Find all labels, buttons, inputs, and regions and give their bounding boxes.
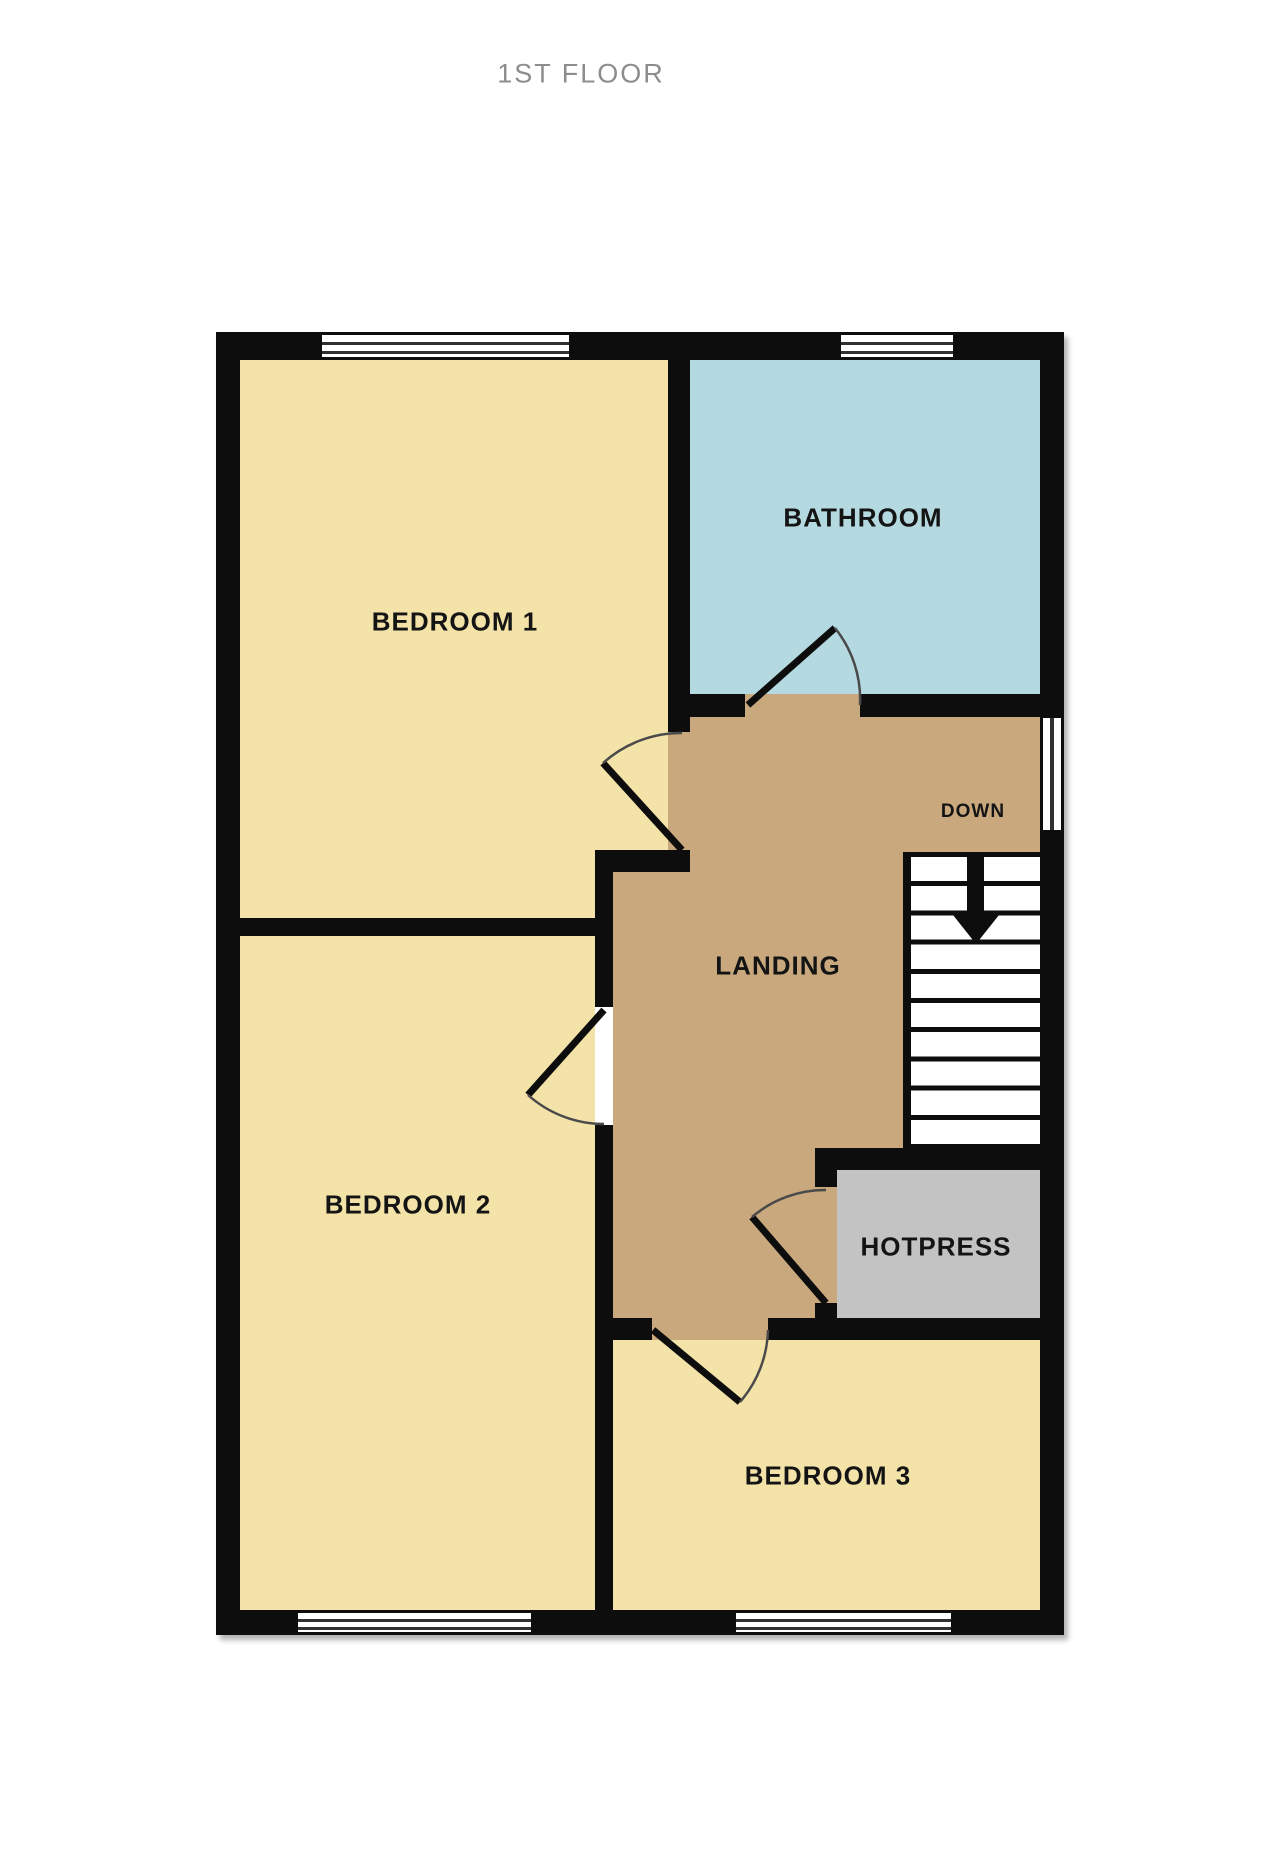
- wall-hotpress-left-lower: [815, 1303, 837, 1318]
- window-pane-line: [298, 1619, 531, 1622]
- room-bedroom1: [240, 360, 668, 918]
- wall-bedroom1-right: [668, 360, 690, 732]
- page-title: 1ST FLOOR: [497, 59, 665, 90]
- room-label-landing: LANDING: [715, 951, 840, 982]
- wall-hotpress-left-upper: [815, 1170, 837, 1187]
- room-label-bedroom3: BEDROOM 3: [745, 1461, 911, 1492]
- outer-wall-right: [1040, 332, 1064, 1635]
- window-top-bedroom1: [322, 332, 569, 360]
- doorway-bedroom3: [652, 1318, 768, 1340]
- window-pane-line: [322, 342, 569, 345]
- window-pane-line: [736, 1619, 951, 1622]
- window-pane-line: [322, 351, 569, 354]
- room-label-bedroom1: BEDROOM 1: [372, 607, 538, 638]
- window-top-bathroom: [841, 332, 953, 360]
- page: { "title": "1ST FLOOR", "rooms": { "bedr…: [0, 0, 1280, 1853]
- stairs-down-label: DOWN: [941, 801, 1005, 823]
- window-pane-line: [736, 1627, 951, 1630]
- window-pane-line: [841, 342, 953, 345]
- down-arrow-icon: [967, 857, 984, 917]
- window-bottom-bedroom2: [298, 1610, 531, 1635]
- room-label-bedroom2: BEDROOM 2: [325, 1190, 491, 1221]
- room-label-bathroom: BATHROOM: [783, 503, 942, 534]
- outer-wall-left: [216, 332, 240, 1635]
- wall-bedroom1-bedroom2-divider: [240, 918, 613, 936]
- window-pane-line: [841, 351, 953, 354]
- room-label-hotpress: HOTPRESS: [860, 1232, 1011, 1263]
- doorway-hotpress: [815, 1187, 837, 1303]
- room-bedroom2: [240, 936, 595, 1610]
- wall-landing-bottom-right: [768, 1318, 1040, 1340]
- window-bottom-bedroom3: [736, 1610, 951, 1635]
- stairs-stringer-wall: [903, 852, 911, 1148]
- window-right-landing: [1040, 718, 1064, 830]
- down-arrow-head-icon: [953, 915, 999, 944]
- wall-bedroom2-right-lower: [595, 1125, 613, 1610]
- window-pane-line: [298, 1627, 531, 1630]
- window-pane-line: [1050, 718, 1054, 830]
- room-landing-upper: [668, 717, 1040, 852]
- wall-bathroom-bottom-left: [668, 694, 745, 717]
- doorway-bathroom: [745, 694, 860, 718]
- wall-landing-bottom-left: [595, 1318, 652, 1340]
- wall-hotpress-top: [815, 1148, 1040, 1170]
- wall-bathroom-bottom-right: [860, 694, 1040, 717]
